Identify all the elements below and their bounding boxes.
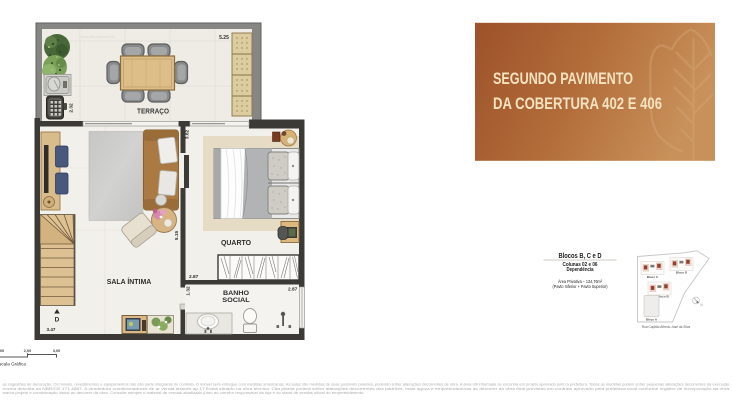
svg-text:Bloco D: Bloco D — [676, 270, 688, 274]
svg-text:00: 00 — [0, 349, 4, 353]
svg-text:3.47: 3.47 — [47, 327, 56, 332]
svg-text:DA COBERTURA 402 E 406: DA COBERTURA 402 E 406 — [493, 94, 662, 113]
svg-text:D: D — [55, 317, 60, 324]
svg-text:QUARTO: QUARTO — [221, 238, 251, 247]
svg-text:BANHO: BANHO — [223, 290, 249, 297]
svg-text:SEGUNDO PAVIMENTO: SEGUNDO PAVIMENTO — [493, 69, 633, 88]
svg-text:1.32: 1.32 — [186, 286, 192, 296]
svg-text:Dependência: Dependência — [567, 267, 594, 273]
svg-text:SOCIAL: SOCIAL — [222, 297, 250, 304]
svg-text:Bloco A: Bloco A — [646, 317, 658, 321]
svg-text:Bloco C: Bloco C — [647, 275, 659, 279]
svg-text:(Pavto Inferior + Pavto Superi: (Pavto Inferior + Pavto Superior) — [553, 284, 608, 290]
svg-text:2.87: 2.87 — [288, 287, 298, 293]
svg-text:SALA ÍNTIMA: SALA ÍNTIMA — [107, 277, 152, 286]
svg-text:TERRAÇO: TERRAÇO — [137, 107, 169, 116]
svg-text:3,00: 3,00 — [53, 349, 60, 353]
svg-text:marca projeto e comunicação vi: marca projeto e comunicação visual ao de… — [3, 391, 365, 395]
svg-text:2.32: 2.32 — [69, 103, 75, 113]
svg-text:3.62: 3.62 — [185, 130, 191, 140]
svg-text:Área descoberta 5,25: Área descoberta 5,25 — [81, 35, 115, 39]
svg-text:5.25: 5.25 — [219, 35, 229, 41]
svg-text:N: N — [701, 303, 704, 307]
svg-text:2,00: 2,00 — [24, 349, 31, 353]
svg-text:2.87: 2.87 — [189, 274, 199, 280]
svg-text:Escala Gráfica: Escala Gráfica — [0, 362, 26, 367]
svg-text:Rua Capitão Alfredo José da Si: Rua Capitão Alfredo José da Silva — [642, 325, 691, 329]
svg-text:Blocos B, C e D: Blocos B, C e D — [559, 253, 602, 260]
svg-text:5.15: 5.15 — [174, 231, 180, 241]
